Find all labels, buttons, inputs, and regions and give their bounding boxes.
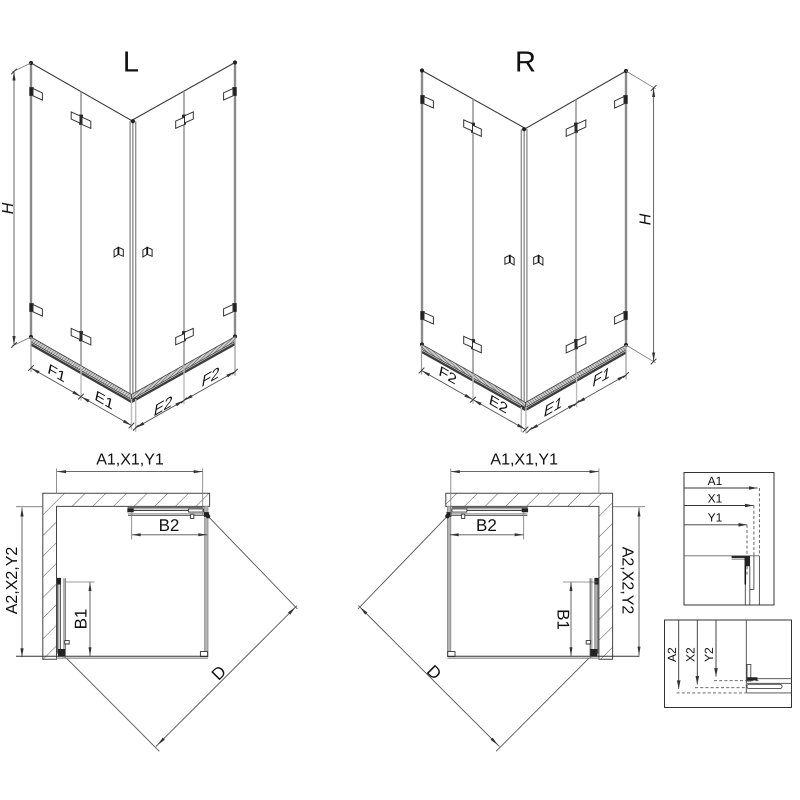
svg-text:B2: B2: [476, 516, 497, 535]
svg-text:B2: B2: [159, 516, 180, 535]
svg-text:R: R: [515, 47, 536, 79]
svg-text:H: H: [637, 213, 654, 225]
svg-text:L: L: [123, 47, 139, 79]
svg-text:A2,X2,Y2: A2,X2,Y2: [4, 547, 21, 615]
svg-text:Y1: Y1: [708, 511, 723, 525]
svg-text:B1: B1: [72, 609, 91, 630]
svg-text:X1: X1: [708, 491, 723, 505]
svg-text:H: H: [0, 202, 17, 214]
svg-text:A2: A2: [665, 647, 679, 662]
svg-text:A2,X2,Y2: A2,X2,Y2: [619, 547, 636, 615]
svg-text:A1,X1,Y1: A1,X1,Y1: [96, 451, 164, 468]
svg-text:A1,X1,Y1: A1,X1,Y1: [490, 451, 558, 468]
svg-text:Y2: Y2: [702, 647, 716, 662]
svg-text:B1: B1: [554, 609, 573, 630]
svg-text:X2: X2: [684, 647, 698, 662]
svg-text:A1: A1: [708, 474, 723, 488]
